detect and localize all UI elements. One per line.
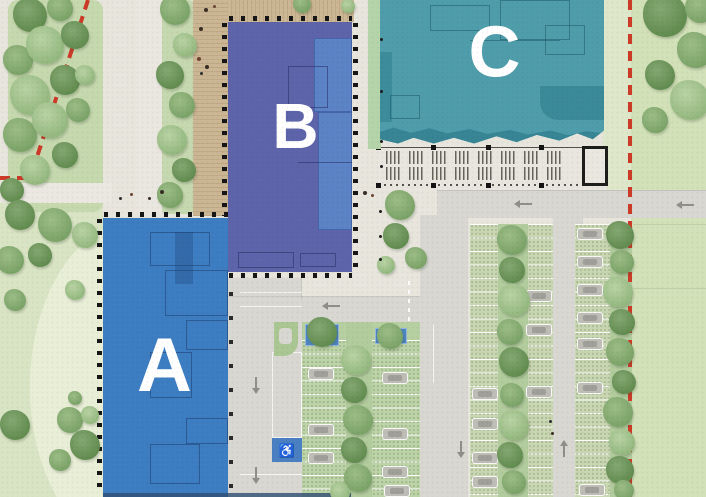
lane-marking (408, 281, 410, 325)
tree-icon (156, 61, 184, 89)
building-c-label: C (469, 12, 522, 94)
building-shadow (380, 116, 604, 145)
tree-icon (61, 21, 89, 49)
stall-line (240, 292, 302, 293)
roof-plan-panel (318, 112, 352, 230)
bollard-icon (380, 165, 383, 168)
stall-line (240, 306, 302, 307)
tree-icon (157, 182, 183, 208)
tree-icon (38, 208, 72, 242)
tree-icon (606, 221, 634, 249)
tree-icon (20, 155, 50, 185)
tree-icon (603, 277, 633, 307)
person-icon (160, 190, 164, 194)
car-icon (577, 228, 603, 240)
tree-icon (603, 397, 633, 427)
bike-rack-icon (501, 151, 516, 164)
tree-icon (341, 0, 355, 13)
building-a-label: A (137, 322, 193, 409)
tree-icon (4, 289, 26, 311)
tree-icon (609, 429, 635, 455)
plan-annotation-box (300, 253, 336, 267)
facade-ticks (229, 292, 233, 492)
tree-icon (66, 98, 90, 122)
lane-marking (433, 325, 434, 383)
parking-stalls (302, 340, 346, 497)
wheelchair-icon: ♿ (279, 444, 295, 457)
car-icon (526, 324, 552, 336)
bike-rack-icon (386, 151, 401, 164)
roof-plan-panel (175, 232, 193, 284)
bike-rack-icon (455, 167, 470, 180)
tree-icon (57, 407, 83, 433)
car-icon (308, 368, 334, 380)
tree-icon (70, 430, 100, 460)
bollard-icon (213, 5, 216, 8)
tree-icon (341, 345, 371, 375)
canopy-post (539, 183, 544, 188)
tree-icon (498, 284, 530, 316)
accessible-parking-bay: ♿ (272, 438, 302, 462)
bollard-icon (380, 90, 383, 93)
building-b-label: B (272, 89, 319, 163)
tree-icon (499, 347, 529, 377)
car-icon (384, 485, 410, 497)
bollard-icon (379, 210, 382, 213)
bollard-icon (130, 193, 133, 196)
canopy-post (539, 145, 544, 150)
bin-store (582, 146, 608, 186)
person-icon (205, 65, 209, 69)
tree-icon (497, 442, 523, 468)
canopy-post (486, 145, 491, 150)
road-arrow (681, 204, 694, 206)
person-icon (197, 57, 201, 61)
car-icon (382, 466, 408, 478)
verge (368, 0, 381, 149)
bike-rack-icon (547, 167, 562, 180)
person-icon (199, 27, 203, 31)
bollard-icon (119, 197, 122, 200)
tree-icon (645, 60, 675, 90)
tree-icon (0, 178, 24, 202)
tree-icon (307, 317, 337, 347)
canopy-edge (378, 147, 607, 148)
bike-rack-icon (432, 167, 447, 180)
tree-icon (383, 223, 409, 249)
bike-rack-icon (386, 167, 401, 180)
tree-icon (81, 406, 99, 424)
tree-icon (75, 65, 95, 85)
canopy-edge (378, 184, 607, 186)
facade-ticks (222, 23, 227, 216)
car-icon (577, 256, 603, 268)
bike-rack-icon (547, 151, 562, 164)
road-arrow (514, 200, 520, 208)
car-icon (472, 452, 498, 464)
canopy-post (431, 145, 436, 150)
bike-rack-icon (524, 151, 539, 164)
plan-annotation-box (238, 252, 294, 268)
facade-ticks (353, 23, 358, 272)
road-arrow (519, 203, 532, 205)
car-icon (526, 386, 552, 398)
bike-rack-icon (524, 167, 539, 180)
tree-icon (341, 377, 367, 403)
tree-icon (341, 437, 367, 463)
tree-icon (72, 222, 98, 248)
tree-icon (670, 80, 706, 120)
roof-plan-line (390, 95, 420, 119)
tree-icon (377, 323, 403, 349)
tree-icon (330, 482, 350, 497)
tree-icon (642, 107, 668, 133)
canopy-post (376, 183, 381, 188)
bike-rack-icon (501, 167, 516, 180)
tree-icon (5, 200, 35, 230)
bollard-icon (549, 420, 552, 423)
road-arrow (676, 201, 682, 209)
plan-annotation-box (186, 418, 228, 444)
bollard-icon (380, 140, 383, 143)
facade-ticks (104, 212, 228, 217)
bollard-icon (371, 194, 374, 197)
tree-icon (385, 190, 415, 220)
bike-rack-icon (455, 151, 470, 164)
tree-icon (0, 410, 30, 440)
road-arrow (252, 478, 260, 484)
tree-icon (0, 246, 24, 274)
stall-line (240, 474, 302, 475)
facade-ticks (229, 16, 352, 21)
facade-ticks (229, 273, 352, 278)
bollard-icon (551, 432, 554, 435)
tree-icon (28, 243, 52, 267)
road-arrow (327, 305, 340, 307)
tree-icon (612, 370, 636, 394)
car-icon (577, 312, 603, 324)
car-icon (308, 424, 334, 436)
car-icon (577, 284, 603, 296)
road-arrow (252, 388, 260, 394)
tree-icon (500, 383, 524, 407)
bike-rack-icon (478, 151, 493, 164)
tree-icon (499, 410, 529, 440)
tree-icon (343, 405, 373, 435)
tree-icon (497, 319, 523, 345)
kerb-cut (279, 328, 292, 344)
bike-rack-icon (478, 167, 493, 180)
tree-icon (169, 92, 195, 118)
bollard-icon (379, 235, 382, 238)
parking-stalls (528, 224, 553, 497)
bollard-icon (200, 72, 203, 75)
tree-icon (502, 470, 526, 494)
tree-icon (157, 125, 187, 155)
car-icon (382, 372, 408, 384)
bike-rack-icon (432, 151, 447, 164)
canopy-post (431, 183, 436, 188)
person-icon (204, 8, 208, 12)
car-icon (308, 452, 334, 464)
building-shadow (540, 86, 604, 120)
footpath (136, 0, 162, 214)
car-icon (472, 418, 498, 430)
tree-icon (32, 102, 68, 138)
tree-icon (68, 391, 82, 405)
tree-icon (65, 280, 85, 300)
road-arrow (457, 452, 465, 458)
tree-icon (606, 338, 634, 366)
facade-ticks (97, 219, 102, 495)
bollard-icon (380, 38, 383, 41)
bike-rack-icon (409, 151, 424, 164)
tree-icon (610, 250, 634, 274)
car-icon (577, 338, 603, 350)
site-plan: ♿ (0, 0, 706, 497)
field-line (633, 224, 706, 225)
car-icon (579, 484, 605, 496)
tree-icon (497, 225, 527, 255)
road-arrow (322, 302, 328, 310)
tree-icon (172, 158, 196, 182)
tree-icon (609, 309, 635, 335)
tree-icon (499, 257, 525, 283)
bollard-icon (379, 258, 382, 261)
parking-stall-outline (272, 352, 302, 438)
road (437, 190, 706, 218)
car-icon (472, 476, 498, 488)
curb-line (301, 278, 302, 300)
tree-icon (405, 247, 427, 269)
bike-rack-icon (409, 167, 424, 180)
tree-icon (49, 449, 71, 471)
tree-icon (173, 33, 197, 57)
curb-line (228, 296, 420, 297)
canopy-post (486, 183, 491, 188)
person-icon (363, 191, 367, 195)
car-icon (382, 428, 408, 440)
car-icon (577, 382, 603, 394)
car-icon (472, 388, 498, 400)
roof-plan-line (150, 444, 200, 484)
tree-icon (52, 142, 78, 168)
bollard-icon (148, 197, 151, 200)
tree-icon (614, 480, 634, 497)
tree-icon (26, 26, 64, 64)
road-arrow (560, 440, 568, 446)
field-line (633, 288, 706, 289)
building-base-shadow (103, 493, 351, 497)
